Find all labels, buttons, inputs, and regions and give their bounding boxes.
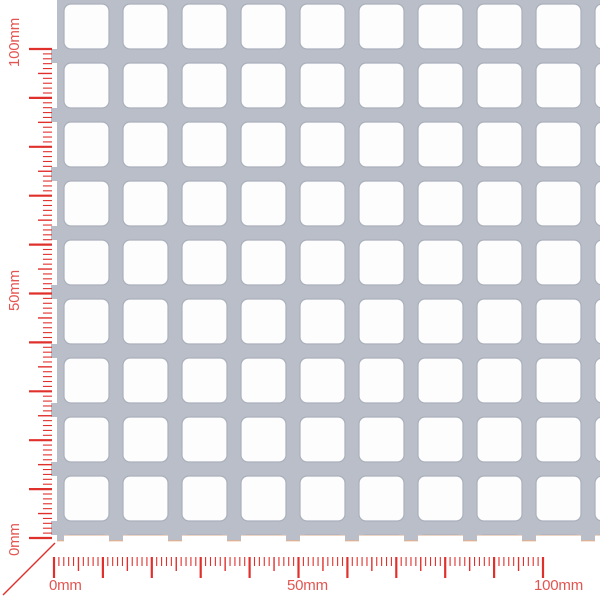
sheet-cut-edge-stub	[51, 344, 57, 358]
vertical-ruler	[29, 49, 52, 538]
sheet-cut-edge-stub	[51, 285, 57, 299]
sheet-cut-edge-stub	[168, 535, 182, 541]
sheet-cut-edge-stub	[57, 540, 64, 541]
sheet-cut-edge-stub	[404, 540, 418, 541]
sheet-cut-edge-stub	[51, 403, 57, 417]
sheet-cut-edge-stub	[227, 540, 241, 541]
perforated-sheet-canvas: 0mm 50mm 100mm 0mm 50mm 100mm	[0, 0, 600, 600]
h-ruler-label-100mm: 100mm	[534, 578, 583, 593]
sheet-cut-edge-stub	[522, 535, 536, 541]
sheet-cut-edge-stub	[522, 540, 536, 541]
h-ruler-label-50mm: 50mm	[287, 578, 328, 593]
sheet-cut-edge-stub	[227, 535, 241, 541]
sheet-cut-edge-stub	[51, 226, 57, 240]
sheet-cut-edge-stub	[463, 535, 477, 541]
sheet-face	[57, 0, 600, 535]
v-ruler-label-100mm: 100mm	[7, 18, 22, 67]
sheet-cut-edge-stub	[581, 535, 595, 541]
sheet-cut-edge-stub	[57, 535, 64, 541]
sheet-cut-edge-stub	[404, 535, 418, 541]
sheet-cut-edge-stub	[51, 108, 57, 122]
sheet-cut-edge-stub	[57, 535, 600, 536]
sheet-cut-edge-stub	[286, 540, 300, 541]
v-ruler-label-0mm: 0mm	[7, 523, 22, 556]
horizontal-ruler	[54, 557, 543, 578]
sheet-cut-edge-stub	[286, 535, 300, 541]
h-ruler-label-0mm: 0mm	[49, 578, 82, 593]
sheet-cut-edge-stub	[463, 540, 477, 541]
sheet-cut-edge-stub	[345, 540, 359, 541]
v-ruler-label-50mm: 50mm	[7, 270, 22, 311]
sheet-cut-edge-stub	[51, 167, 57, 181]
sheet-cut-edge-stub	[109, 535, 123, 541]
sheet-cut-edge-stub	[168, 540, 182, 541]
sheet-cut-edge-stub	[345, 535, 359, 541]
sheet-cut-edge-stub	[581, 540, 595, 541]
sheet-cut-edge-stub	[109, 540, 123, 541]
perforated-sheet	[51, 0, 600, 541]
sheet-and-rulers-graphic	[0, 0, 600, 600]
sheet-cut-edge-stub	[51, 49, 57, 63]
